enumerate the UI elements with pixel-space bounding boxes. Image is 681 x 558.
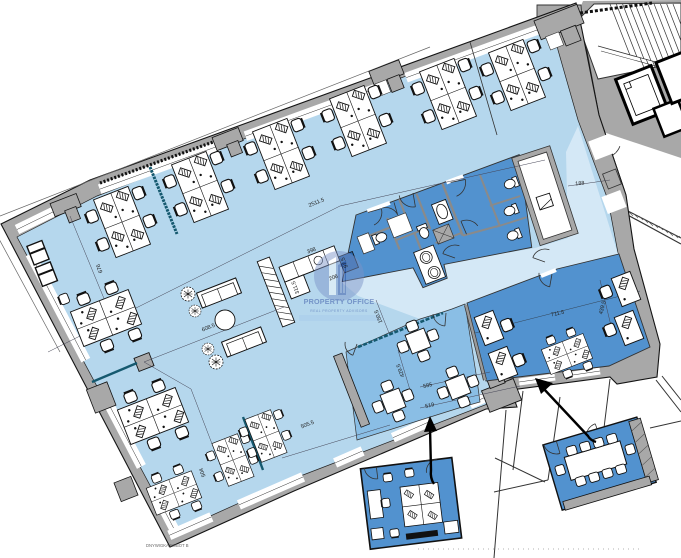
svg-text:188: 188 <box>575 181 585 188</box>
svg-text:PROPERTY OFFICE: PROPERTY OFFICE <box>304 297 375 306</box>
svg-text:DNYWIGKA ROBOT B: DNYWIGKA ROBOT B <box>146 543 189 548</box>
svg-text:REAL PROPERTY ADVISORS: REAL PROPERTY ADVISORS <box>310 309 368 313</box>
